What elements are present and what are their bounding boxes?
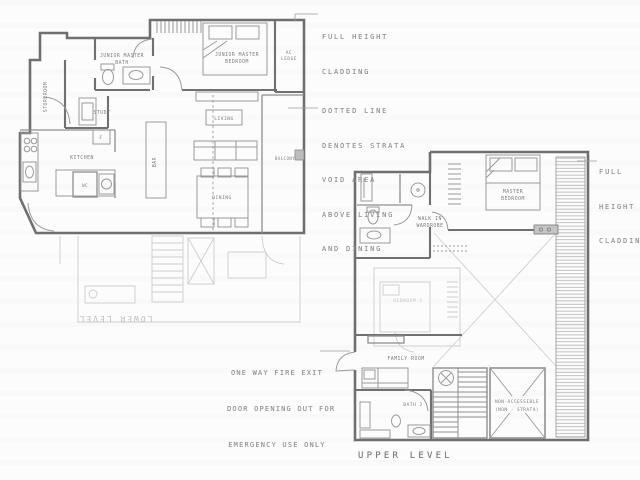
label-ac-ledge-2: LEDGE (281, 56, 297, 62)
note-full-height-cladding-right: FULL HEIGHT CLADDING (599, 144, 640, 271)
label-living: LIVING (214, 116, 234, 122)
upper-level-caption: UPPER LEVEL (358, 451, 453, 461)
label-study: STUDY (94, 110, 111, 116)
note-line: CLADDING (599, 236, 640, 248)
label-storeroom: STOREROOM (43, 82, 49, 113)
label-junior-bedroom-1: JUNIOR MASTER (215, 52, 259, 58)
toilet-bath2 (392, 415, 401, 427)
void-cross (434, 233, 556, 366)
label-master-bedroom-2: BEDROOM (501, 196, 525, 202)
label-dining: DINING (212, 195, 232, 201)
label-ac-ledge-1: AC (286, 50, 292, 56)
note-line: AND DINING (322, 244, 406, 256)
label-non-accessible-2: (NON - STRATA) (495, 407, 539, 413)
label-kitchen: KITCHEN (70, 155, 94, 161)
label-wc: WC (82, 183, 88, 188)
note-line: VOID AREA (322, 175, 406, 187)
note-strata-void: DOTTED LINE DENOTES STRATA VOID AREA ABO… (322, 83, 406, 279)
vanity-bath2 (408, 425, 430, 437)
label-junior-bath-1: JUNIOR MASTER (100, 53, 144, 59)
label-balcony: BALCONY (275, 156, 295, 161)
shower (411, 183, 425, 197)
label-master-bedroom-1: MASTER (503, 189, 523, 195)
wardrobe-shelf-ticks (448, 164, 461, 204)
label-bath2: BATH 2 (403, 402, 423, 408)
cladding-hatch (556, 157, 585, 437)
note-line: DOTTED LINE (322, 106, 406, 118)
tv-console (196, 92, 258, 101)
junior-bed (203, 23, 267, 75)
note-line: FULL HEIGHT (322, 32, 388, 44)
lower-plan: STOREROOM JUNIOR MASTER BATH JUNIOR MAST… (20, 20, 304, 322)
note-line: ABOVE LIVING (322, 210, 406, 222)
note-line: DENOTES STRATA (322, 141, 406, 153)
upper-ghost-linework (374, 268, 460, 352)
note-line: DOOR OPENING OUT FOR (227, 403, 327, 415)
note-line: EMERGENCY USE ONLY (227, 439, 327, 451)
bedroom-wall-unit (534, 225, 558, 234)
door-arcs (28, 39, 182, 231)
balcony-sill (295, 150, 304, 160)
wardrobe-ticks (157, 21, 201, 33)
label-ghost-bedroom: BEDROOM 2 (393, 298, 422, 304)
label-bar: BAR (152, 157, 158, 167)
note-fire-exit: ONE WAY FIRE EXIT DOOR OPENING OUT FOR E… (227, 343, 327, 475)
wardrobe-cabinets-dashed (433, 246, 468, 251)
label-junior-bedroom-2: BEDROOM (225, 59, 249, 65)
vanity (123, 67, 150, 84)
daybed (362, 368, 408, 388)
note-line: HEIGHT (599, 202, 640, 214)
lower-ghost-linework (60, 236, 300, 322)
label-wardrobe-1: WALK IN (418, 216, 442, 222)
lower-level-ghost-caption: LOWER LEVEL (70, 314, 160, 323)
lower-partitions (20, 95, 304, 233)
fire-exit-door (336, 352, 355, 371)
label-junior-bath-2: BATH (115, 60, 129, 66)
label-fridge: F (99, 135, 102, 141)
label-family-room: FAMILY ROOM (387, 356, 424, 362)
note-line: CLADDING (322, 67, 388, 79)
staircase (433, 368, 487, 438)
toilet (103, 70, 114, 85)
sofa (194, 141, 257, 160)
note-line: FULL (599, 167, 640, 179)
label-wardrobe-2: WARDROBE (416, 223, 443, 229)
label-non-accessible-1: NON-ACCESSIBLE (495, 399, 539, 405)
note-line: ONE WAY FIRE EXIT (227, 367, 327, 379)
floorplan-page: STOREROOM JUNIOR MASTER BATH JUNIOR MAST… (0, 0, 640, 480)
